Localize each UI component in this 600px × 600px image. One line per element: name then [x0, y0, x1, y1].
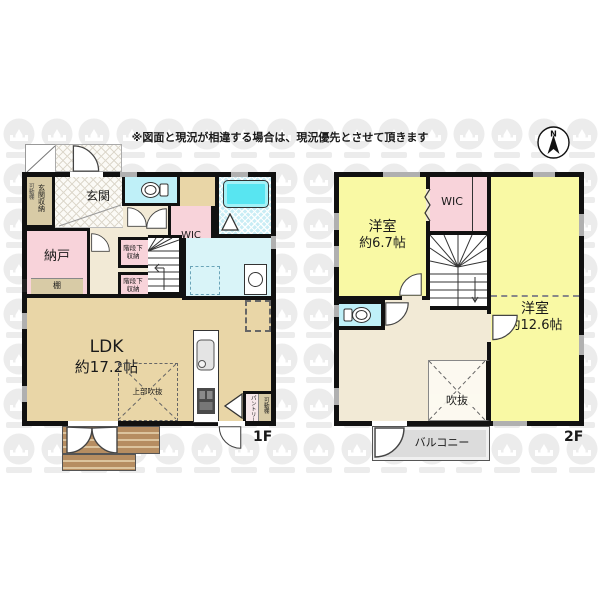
ldk-name: LDK [49, 337, 164, 358]
watermark-logo [302, 298, 336, 342]
watermark-logo [527, 433, 561, 477]
window-marker [493, 421, 527, 426]
service-door-marker [22, 279, 27, 292]
door-arc-toilet-2f [385, 302, 409, 326]
window-marker [231, 172, 248, 177]
window-marker [383, 172, 420, 177]
stairs-2f [430, 235, 491, 310]
watermark-logo [490, 433, 524, 477]
pantry-label: パントリー [249, 395, 256, 423]
pantry-door-mark [223, 393, 243, 419]
entrance-label: 玄関 [73, 189, 123, 204]
floor-plan-1f: 可動棚 玄関収納 玄関 WIC [22, 172, 276, 426]
refrigerator-space [245, 300, 271, 332]
wic-accordion-door-icon [424, 189, 432, 221]
door-arc-balcony [374, 427, 405, 458]
window-marker [334, 213, 339, 230]
wall-segment [90, 294, 182, 298]
void-label: 吹抜 [429, 394, 485, 407]
storage-room-nando: 納戸 棚 [27, 228, 90, 298]
shelf-strip: 棚 [31, 278, 83, 294]
washer-space-dashed [190, 266, 220, 295]
bedroom-6-7-door-gap [402, 296, 422, 300]
window-marker [533, 172, 555, 177]
door-arc-wic-1f [146, 208, 167, 229]
stairs-2f-symbol [430, 235, 487, 306]
watermark-logo [340, 433, 374, 477]
door-arc-nando [91, 233, 110, 252]
room-boundary-dashed [491, 295, 579, 297]
watermark-logo [302, 343, 336, 387]
compass-north-icon: N [537, 126, 570, 159]
balcony-label: バルコニー [397, 436, 487, 449]
bedroom-6-7-name: 洋室 [339, 219, 426, 236]
floor-plan-2f: 洋室 約6.7帖 WIC [334, 172, 584, 426]
wall-segment [487, 177, 491, 314]
walk-in-closet-2f: WIC [430, 177, 491, 235]
toilet-2f [339, 300, 385, 330]
porch-corner [25, 144, 57, 174]
watermark-logo [302, 208, 336, 252]
toilet-icon [343, 306, 373, 324]
entrance-step-line [55, 203, 123, 227]
entrance-door-arc [72, 145, 100, 172]
floor-2f-label: 2F [564, 429, 583, 446]
void-open-ceiling: 吹抜 [428, 360, 490, 421]
under-stair-storage-1: 階段下収納 [118, 237, 148, 268]
shelf-label: 棚 [31, 281, 83, 291]
entrance-storage-label: 玄関収納 [37, 184, 46, 212]
washing-machine-icon [244, 264, 267, 295]
door-arc-ldk-exterior [218, 426, 242, 449]
bedroom-6-7-size: 約6.7帖 [339, 236, 426, 252]
stairs-1f [148, 235, 182, 295]
watermark-logo [302, 253, 336, 297]
window-marker [579, 214, 584, 236]
toilet-1f [122, 177, 180, 206]
wood-deck-lower [62, 454, 136, 471]
void-x [429, 361, 485, 420]
deck-double-door-arc [66, 427, 118, 453]
entrance-movable-shelf-label: 可動棚 [27, 183, 34, 200]
bedroom-12-6: 洋室 約12.6帖 [491, 177, 579, 421]
storage-room-label: 納戸 [27, 249, 87, 265]
watermark-logo [302, 433, 336, 477]
door-arc-bedroom-6-7 [399, 273, 422, 296]
door-arc-toilet-1f [127, 207, 147, 227]
watermark-logo [302, 163, 336, 207]
entrance-storage-room: 可動棚 玄関収納 [27, 177, 55, 228]
window-marker [579, 335, 584, 355]
bath-folding-door-icon [221, 213, 241, 231]
door-arc-bedroom-12-6 [492, 314, 518, 341]
stairs-1f-symbol [148, 238, 179, 292]
pantry: パントリー 可動棚 [243, 391, 271, 421]
window-marker [120, 172, 137, 177]
wic-2f-label: WIC [430, 195, 474, 208]
window-marker [334, 246, 339, 267]
bathtub [223, 180, 269, 208]
disclaimer-text: ※図面と現況が相違する場合は、現況優先とさせて頂きます [60, 131, 500, 144]
window-marker [271, 236, 276, 249]
floor-1f-label: 1F [253, 429, 272, 446]
under-stair-storage-1-label: 階段下収納 [122, 244, 144, 261]
entrance-door-gap [70, 172, 103, 177]
toilet-icon [139, 181, 169, 199]
under-stair-storage-2-label: 階段下収納 [122, 277, 144, 294]
watermark-logo [2, 433, 36, 477]
entrance-room: 玄関 [55, 177, 123, 228]
wic-divider [472, 177, 473, 231]
open-ceiling-label: 上部吹抜 [119, 387, 176, 396]
window-marker [22, 313, 27, 329]
window-marker [334, 305, 339, 317]
watermark-logo [302, 388, 336, 432]
window-marker [22, 386, 27, 402]
window-marker [334, 388, 339, 405]
open-ceiling-above: 上部吹抜 [118, 363, 178, 421]
bathroom-1f [215, 177, 271, 238]
floorplan-image: ※図面と現況が相違する場合は、現況優先とさせて頂きます N 可動棚 玄関収納 玄… [0, 0, 600, 600]
kitchen-island [193, 330, 219, 423]
washroom-1f [182, 238, 271, 300]
pantry-shelf-label: 可動棚 [262, 397, 269, 414]
